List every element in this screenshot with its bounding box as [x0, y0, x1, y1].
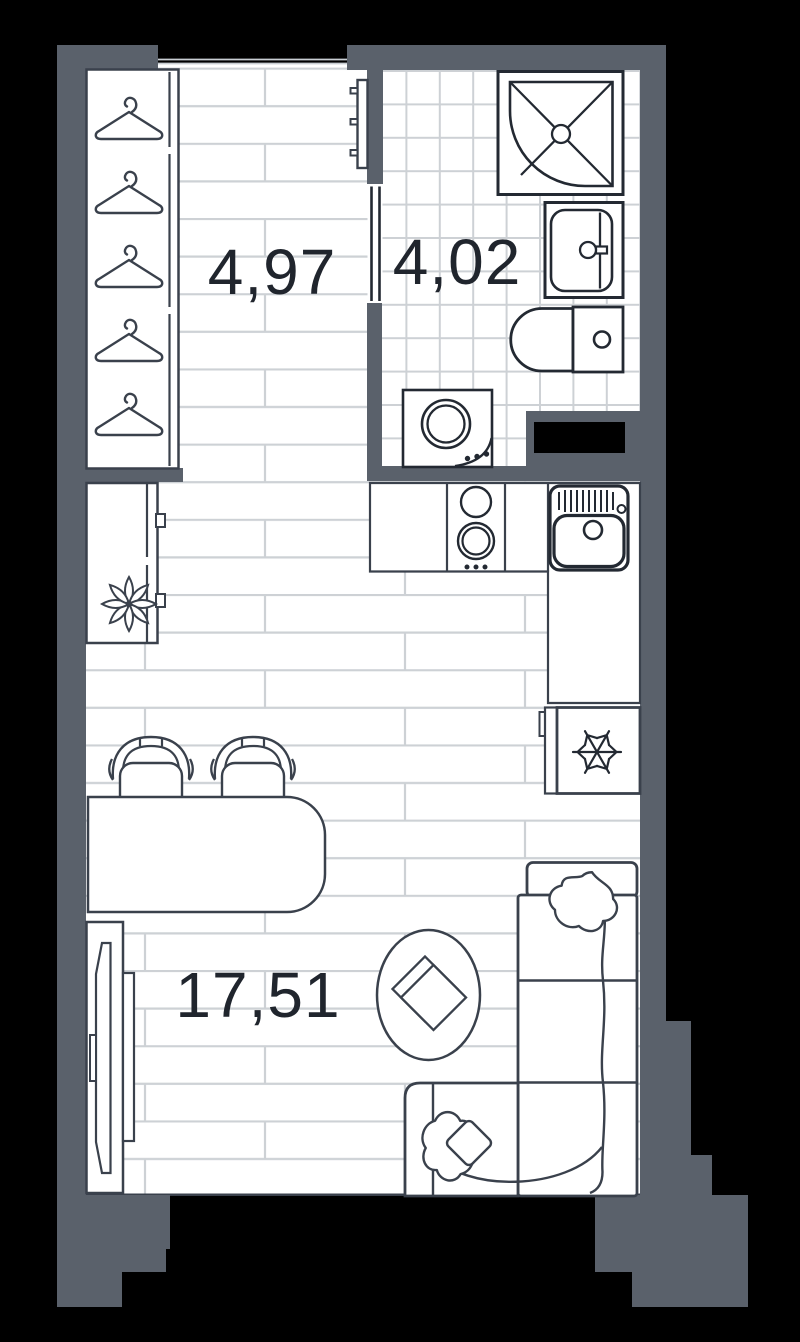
wall-segment: [640, 1021, 691, 1155]
floor-plan-canvas: 4,97 4,02 17,51: [0, 0, 800, 1342]
door-hinge-icon: [351, 150, 358, 156]
sofa-body: [518, 895, 637, 1196]
rug: [377, 930, 480, 1060]
cabinet-handle: [156, 594, 165, 607]
toilet-bowl: [511, 309, 573, 372]
living-area-label: 17,51: [175, 959, 340, 1031]
kitchen-sink: [550, 486, 628, 570]
entrance-door-leaf: [358, 80, 368, 168]
refrigerator: [540, 708, 641, 794]
flush-button-icon: [594, 332, 610, 348]
door-hinge-icon: [351, 119, 358, 125]
toilet: [511, 307, 623, 372]
sink-faucet-icon: [584, 521, 602, 539]
wall-segment: [57, 45, 86, 1195]
tv-mount: [90, 1035, 96, 1081]
wall-segment: [367, 70, 383, 184]
washing-machine: [403, 390, 492, 467]
bathroom-area-label: 4,02: [393, 226, 522, 298]
ventilation-shaft: [534, 422, 625, 453]
wall-segment: [632, 1272, 748, 1307]
entrance-door: [351, 80, 368, 168]
hallway-area-label: 4,97: [208, 236, 337, 308]
washbasin: [545, 203, 623, 298]
wall-segment: [595, 1195, 748, 1272]
tv-screen: [96, 943, 111, 1173]
wall-segment: [347, 45, 666, 70]
shower-cabin: [498, 72, 623, 195]
wall-segment: [86, 468, 183, 482]
bathroom-door: [368, 184, 383, 303]
wall-segment: [57, 1249, 166, 1272]
shower-drain-icon: [552, 125, 570, 143]
plant-icon: [102, 577, 156, 631]
wardrobe: [87, 70, 179, 469]
cabinet: [87, 483, 166, 643]
wall-segment: [367, 303, 382, 481]
floor-plan-stage: 4,97 4,02 17,51: [0, 0, 800, 1342]
dining-table: [88, 797, 325, 912]
wall-segment: [640, 1155, 712, 1195]
fridge-door: [545, 708, 557, 794]
cabinet-handle: [156, 514, 165, 527]
basin-faucet-icon: [580, 242, 596, 258]
wall-segment: [57, 1272, 122, 1307]
wall-segment: [640, 45, 666, 1021]
door-hinge-icon: [351, 88, 358, 94]
wall-segment: [57, 1195, 170, 1249]
